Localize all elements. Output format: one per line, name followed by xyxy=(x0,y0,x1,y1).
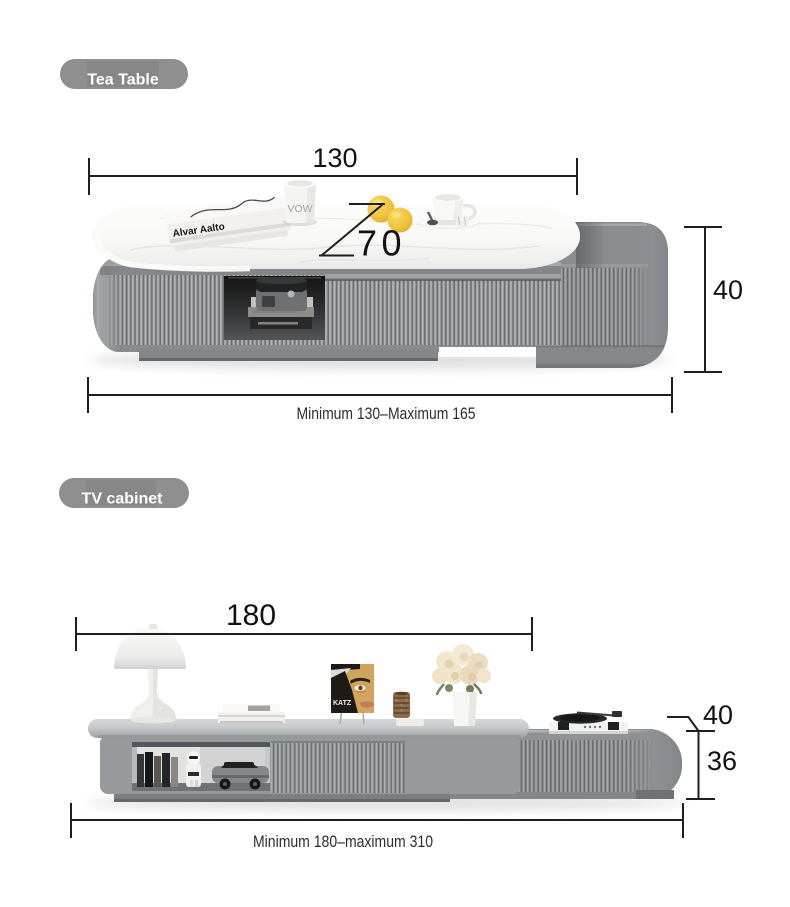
svg-text:VOW: VOW xyxy=(287,203,312,215)
svg-text:130: 130 xyxy=(312,143,357,173)
svg-text:36: 36 xyxy=(707,746,737,776)
svg-text:Minimum 130–Maximum 165: Minimum 130–Maximum 165 xyxy=(297,404,476,423)
svg-text:70: 70 xyxy=(357,223,406,264)
svg-text:180: 180 xyxy=(226,599,276,632)
svg-text:Tea Table: Tea Table xyxy=(87,72,159,89)
svg-text:TV cabinet: TV cabinet xyxy=(82,491,164,508)
svg-text:40: 40 xyxy=(703,700,733,730)
svg-text:40: 40 xyxy=(713,275,743,305)
svg-text:KATZ: KATZ xyxy=(333,700,352,707)
svg-text:Minimum 180–maximum 310: Minimum 180–maximum 310 xyxy=(253,832,433,851)
